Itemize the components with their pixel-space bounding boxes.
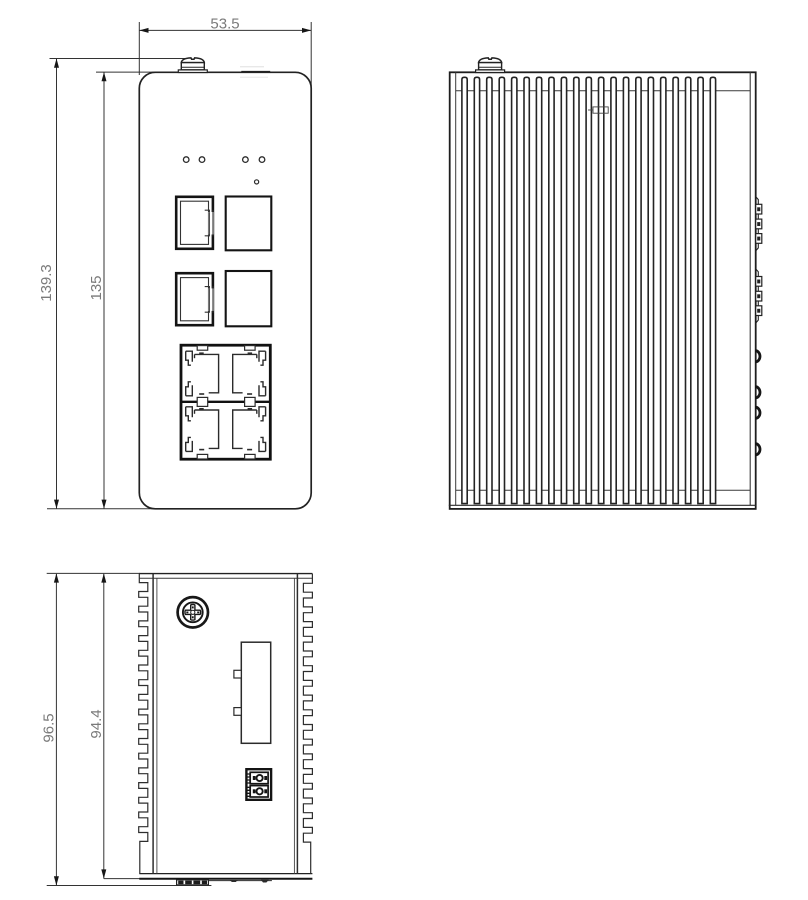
svg-text:94.4: 94.4 [88, 709, 105, 738]
svg-text:96.5: 96.5 [41, 713, 58, 742]
svg-text:135: 135 [88, 275, 105, 300]
svg-text:139.3: 139.3 [38, 264, 55, 302]
svg-text:53.5: 53.5 [210, 15, 239, 32]
